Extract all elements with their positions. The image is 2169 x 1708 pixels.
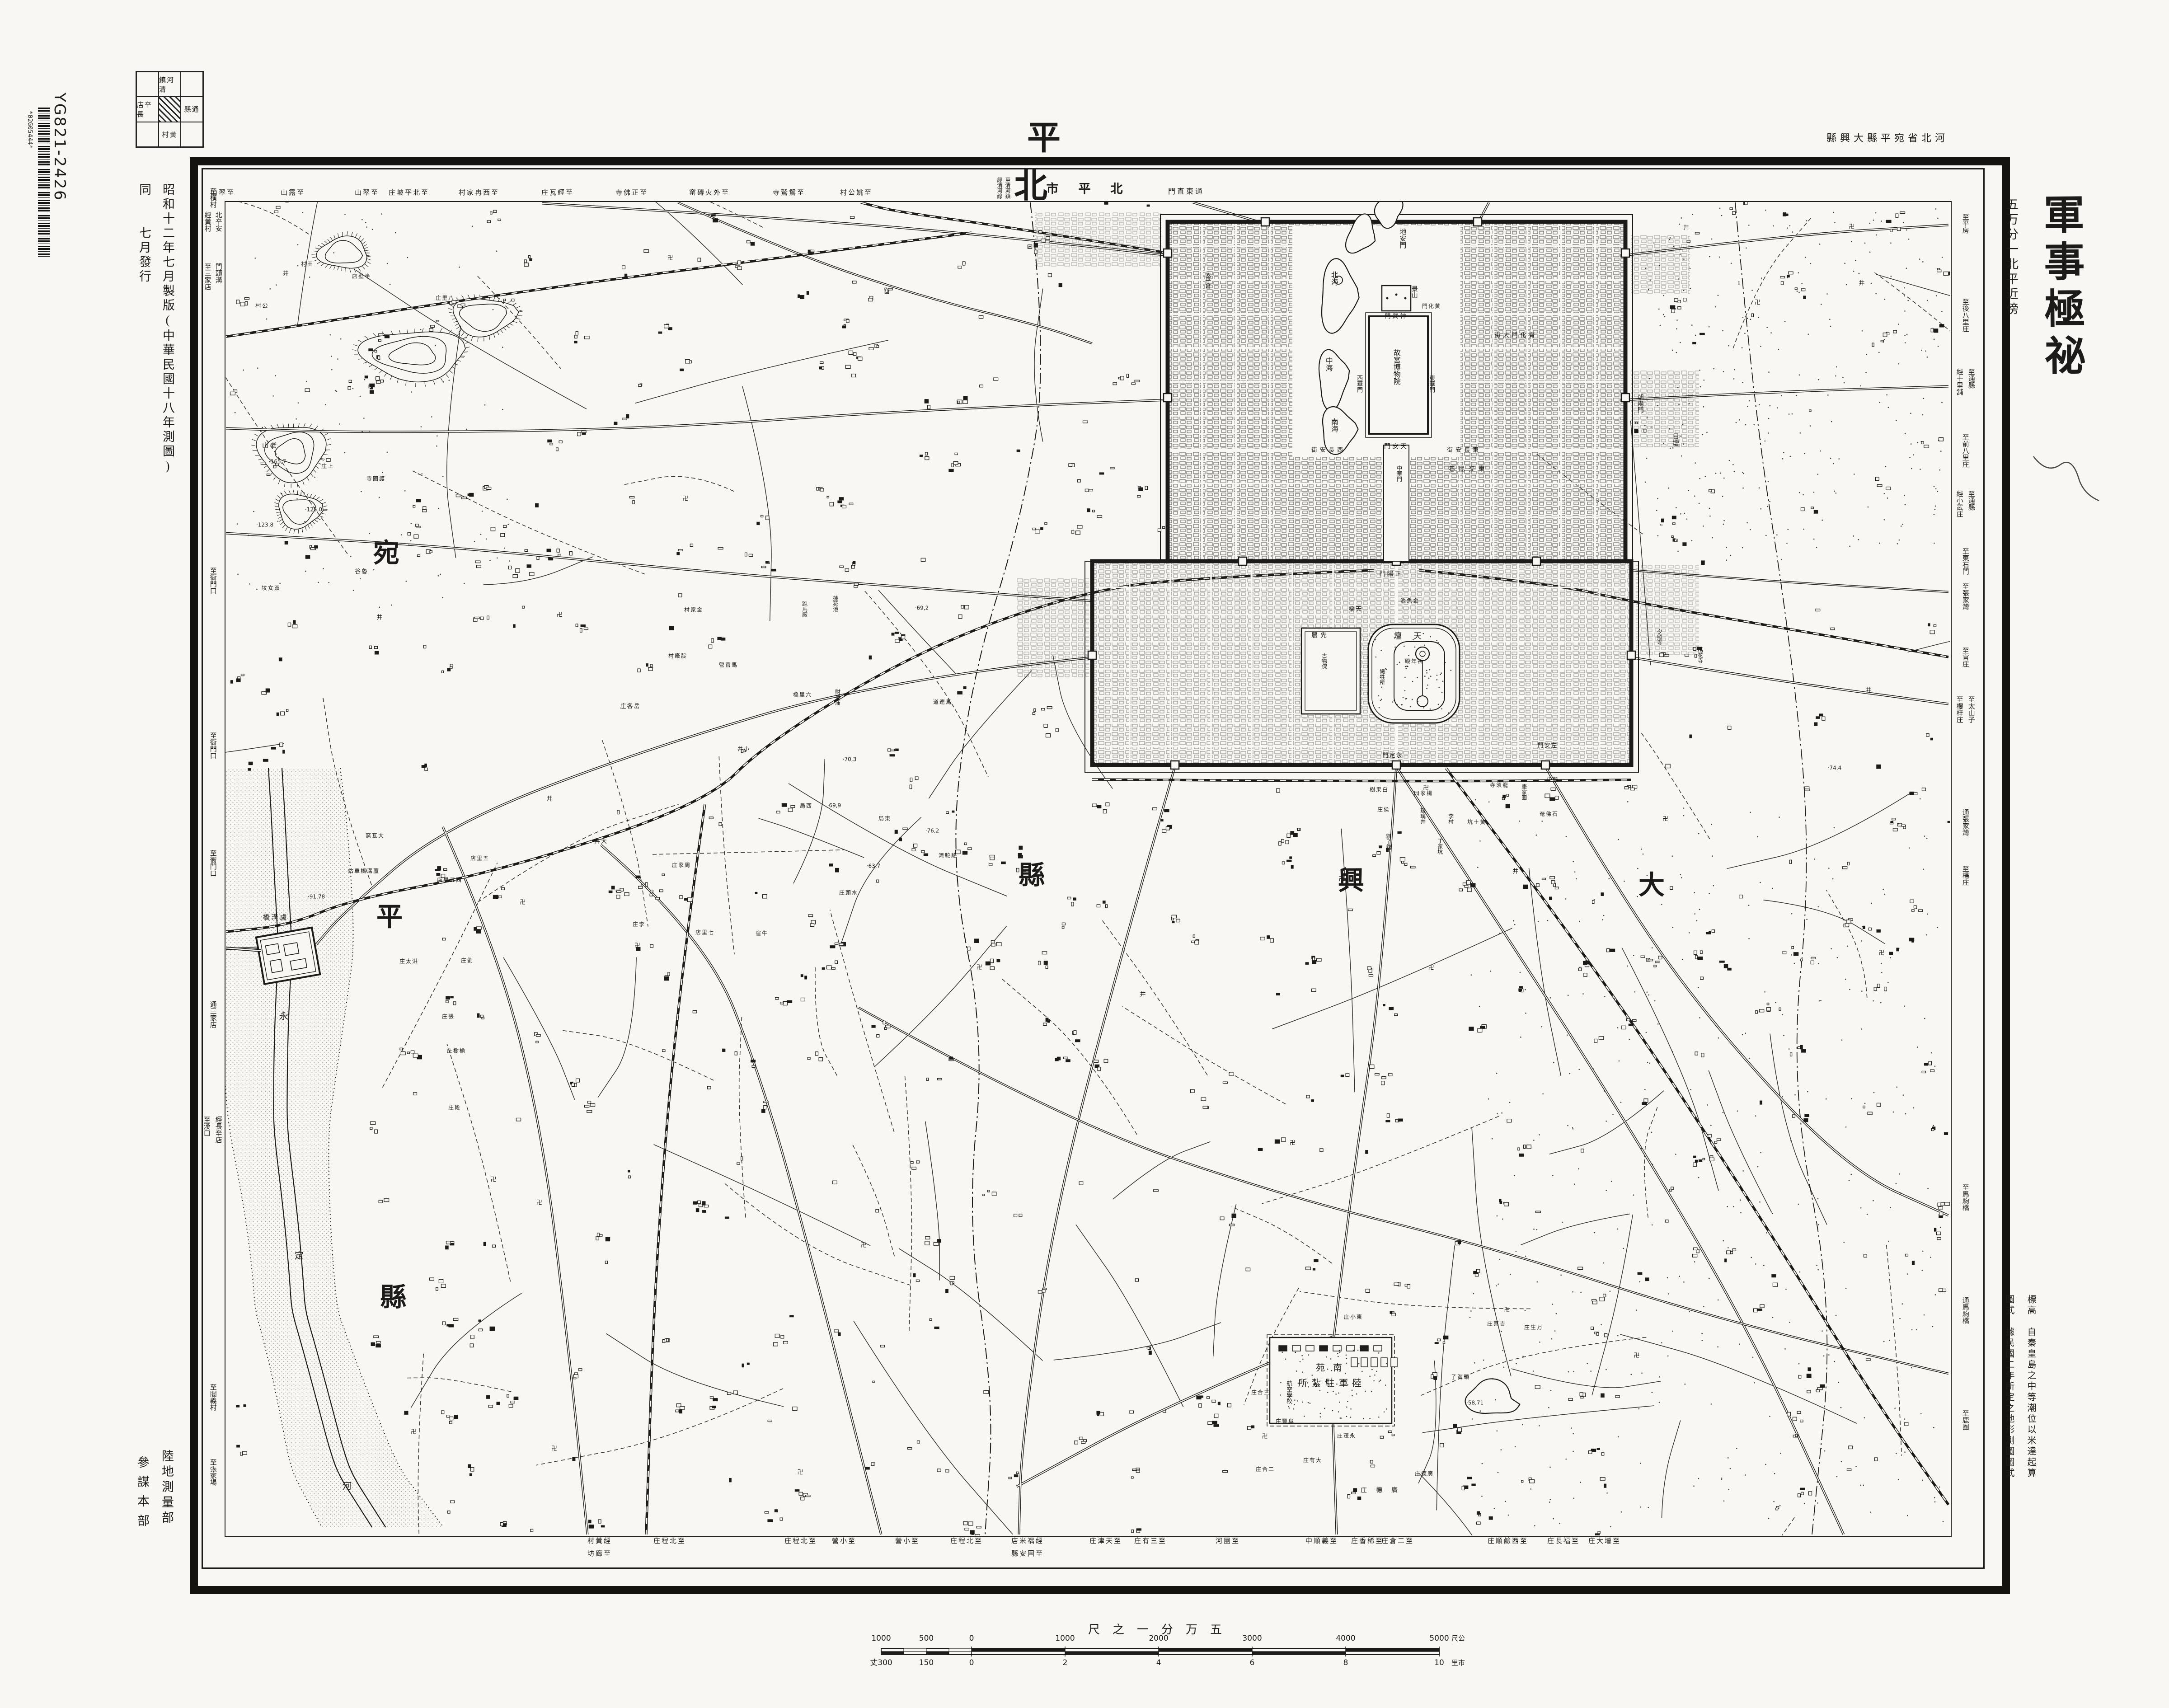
adjacent-sheet-index: 鎮河清 店辛長 縣通 村黄 <box>136 71 204 148</box>
idx-cell-top: 鎮河清 <box>159 72 181 97</box>
map-sheet: 卍井井卍卍卍井卍井卍卍井卍卍卍卍卍卍卍卍卍井井卍卍卍卍卍卍井卍 鎮河清 店辛長 … <box>0 0 2169 1708</box>
barcode <box>38 108 50 257</box>
barcode-text: *02G05444* <box>26 111 33 149</box>
idx-cell <box>181 72 203 97</box>
classification-stamp: 軍事極祕 <box>2030 193 2090 381</box>
idx-cell <box>136 72 159 97</box>
city-rail-note-1: 至清河鎮 <box>1004 177 1012 199</box>
general-staff: 參謀本部 <box>134 1456 151 1534</box>
edition-note: 昭和十二年七月製版(中華民國十八年測圖) <box>159 183 177 475</box>
map-neat-line <box>225 201 1952 1537</box>
idx-cell <box>181 122 203 147</box>
series-note: 五万分一北平近傍 <box>2003 198 2020 317</box>
scale-caption: 尺之一分万五 <box>1075 1620 1247 1637</box>
city-rail-note-2: 經清河線 <box>996 177 1004 199</box>
idx-cell-current <box>159 97 181 122</box>
elevation-note: 標高 自秦皇島之中等潮位以米達起算 <box>2024 1295 2038 1479</box>
issue-note: 同 七月發行 <box>136 183 153 284</box>
region-note: 縣興大縣平宛省北河 <box>1762 130 1948 145</box>
idx-cell <box>136 122 159 147</box>
surveyor: 陸地測量部 <box>158 1450 176 1526</box>
catalog-code: YG821-2426 <box>51 93 69 202</box>
city-gate-note: 門直東通 <box>1168 185 1204 196</box>
idx-cell-bottom: 村黄 <box>159 122 181 147</box>
city-name-label: 市平北 <box>1012 179 1157 197</box>
idx-cell-left: 店辛長 <box>136 97 159 122</box>
map-style-note: 圖式 據民國二年所定之地形測圖圖式 <box>2003 1295 2016 1479</box>
idx-cell-right: 縣通 <box>181 97 203 122</box>
